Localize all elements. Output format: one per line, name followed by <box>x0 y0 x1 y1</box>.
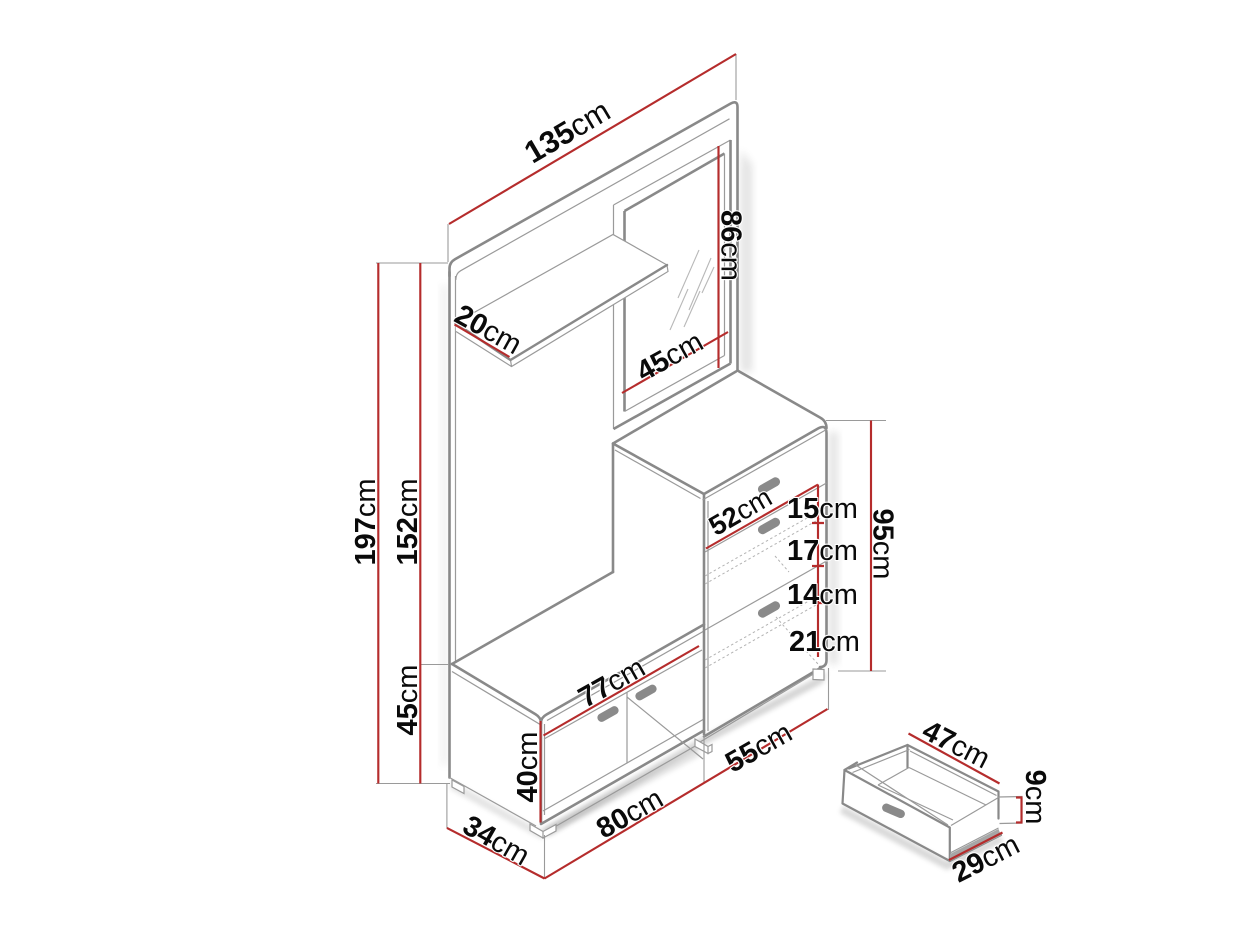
svg-text:17cm: 17cm <box>787 535 858 567</box>
svg-text:45cm: 45cm <box>392 665 424 736</box>
svg-text:15cm: 15cm <box>787 493 858 525</box>
svg-text:86cm: 86cm <box>715 210 747 281</box>
svg-text:152cm: 152cm <box>392 478 424 565</box>
svg-text:21cm: 21cm <box>789 626 860 658</box>
svg-text:14cm: 14cm <box>787 579 858 611</box>
svg-text:40cm: 40cm <box>512 732 544 803</box>
svg-text:95cm: 95cm <box>867 509 899 580</box>
svg-text:197cm: 197cm <box>350 478 382 565</box>
svg-text:9cm: 9cm <box>1019 770 1051 825</box>
